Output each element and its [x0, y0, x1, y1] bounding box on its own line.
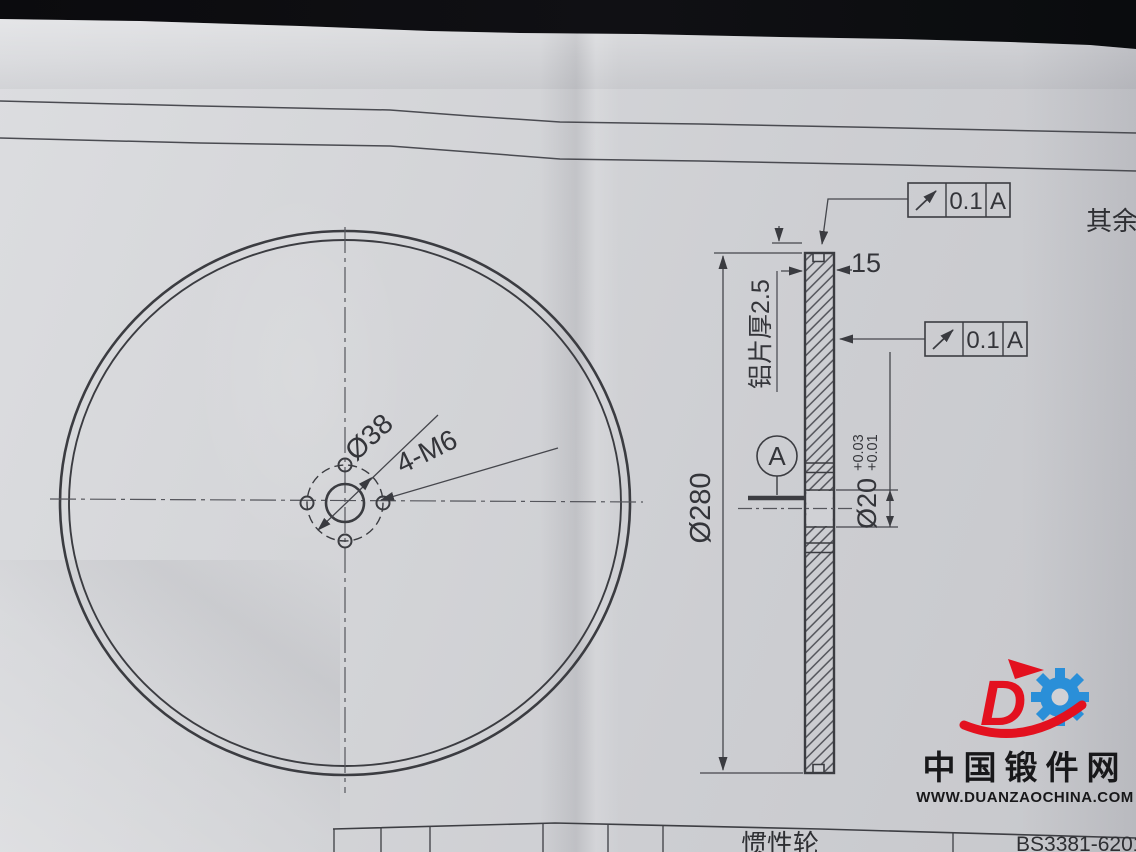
centerlines: [50, 227, 643, 793]
dim-bolt-circle-label: Ø38: [339, 408, 399, 467]
watermark-site-url: WWW.DUANZAOCHINA.COM: [912, 790, 1136, 805]
photo-of-engineering-drawing: Ø38 4-M6: [0, 0, 1136, 852]
dim-sheet-thickness-label: 铝片厚2.5: [747, 279, 775, 389]
tolerance-value: 0.1: [966, 327, 999, 354]
dim-tapped-holes-label: 4-M6: [391, 424, 462, 480]
tolerance-datum: A: [1007, 327, 1023, 354]
watermark-site-name: 中国锻件网: [912, 751, 1136, 784]
surface-note: 其余: [1086, 206, 1136, 236]
circular-runout-icon: [933, 330, 953, 349]
tolerance-frame-middle: 0.1 A: [840, 322, 1027, 356]
datum-label: A: [768, 441, 786, 471]
datum-feature: A: [748, 436, 805, 498]
watermark-logo: D 中国锻件网 WWW.DUANZAOCHINA.COM: [912, 653, 1136, 805]
front-view: [50, 227, 643, 793]
dim-rim-width-label: 15: [851, 248, 881, 278]
tapped-holes: [301, 459, 390, 548]
dim-outer-diameter-label: Ø280: [685, 473, 717, 544]
svg-text:D: D: [980, 667, 1026, 739]
sheet-frame-border: [0, 101, 1136, 171]
bore-tol-lower: +0.01: [865, 434, 881, 471]
part-name: 惯性轮: [741, 829, 819, 852]
dim-bore-label: Ø20 +0.03 +0.01: [851, 434, 882, 529]
tolerance-datum: A: [990, 188, 1006, 215]
drawing-number: BS3381-6201: [1016, 833, 1136, 852]
tolerance-frame-top: 0.1 A: [822, 183, 1010, 244]
svg-text:Ø20: Ø20: [852, 478, 882, 529]
leader-line: [822, 199, 908, 244]
brand-mark: D: [912, 653, 1136, 745]
tolerance-value: 0.1: [949, 188, 982, 215]
circular-runout-icon: [916, 191, 936, 210]
